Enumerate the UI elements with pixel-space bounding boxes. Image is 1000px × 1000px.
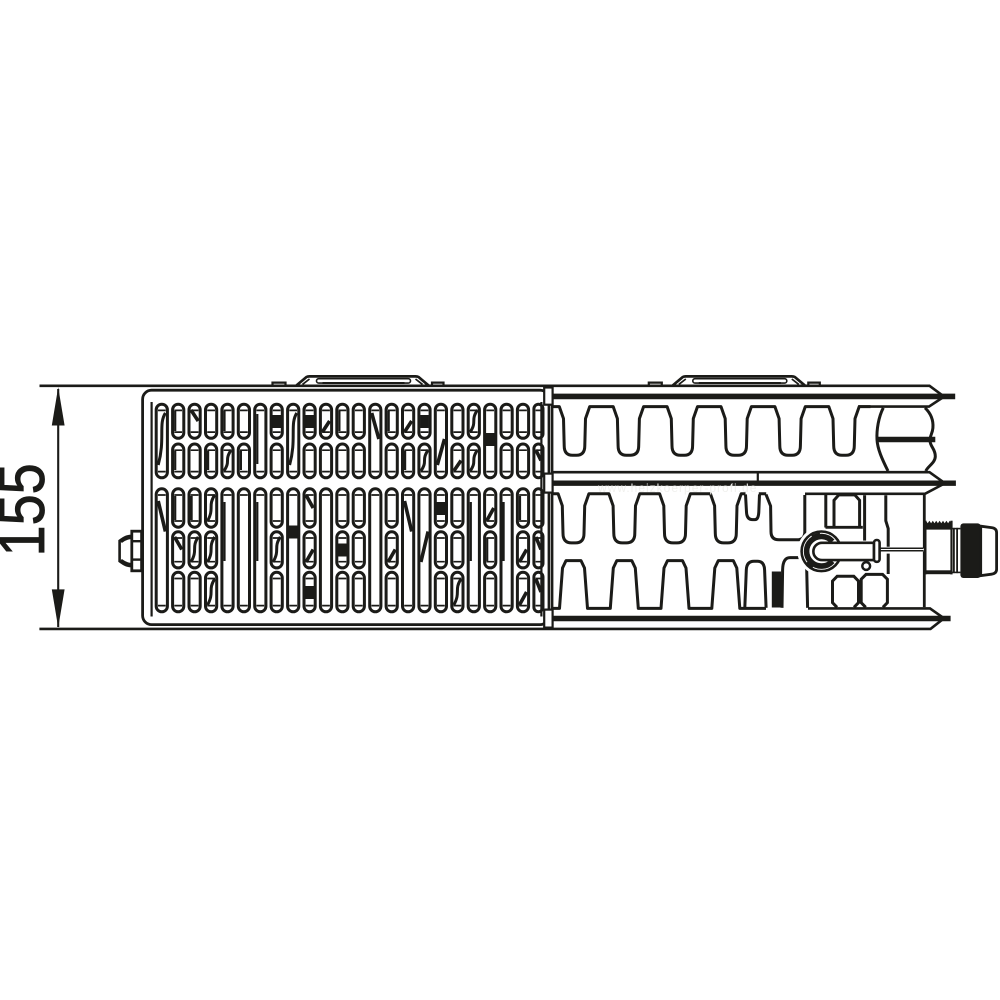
svg-text:155: 155 <box>0 463 58 556</box>
svg-text:www.heizkoerper-profi.de: www.heizkoerper-profi.de <box>597 481 757 495</box>
